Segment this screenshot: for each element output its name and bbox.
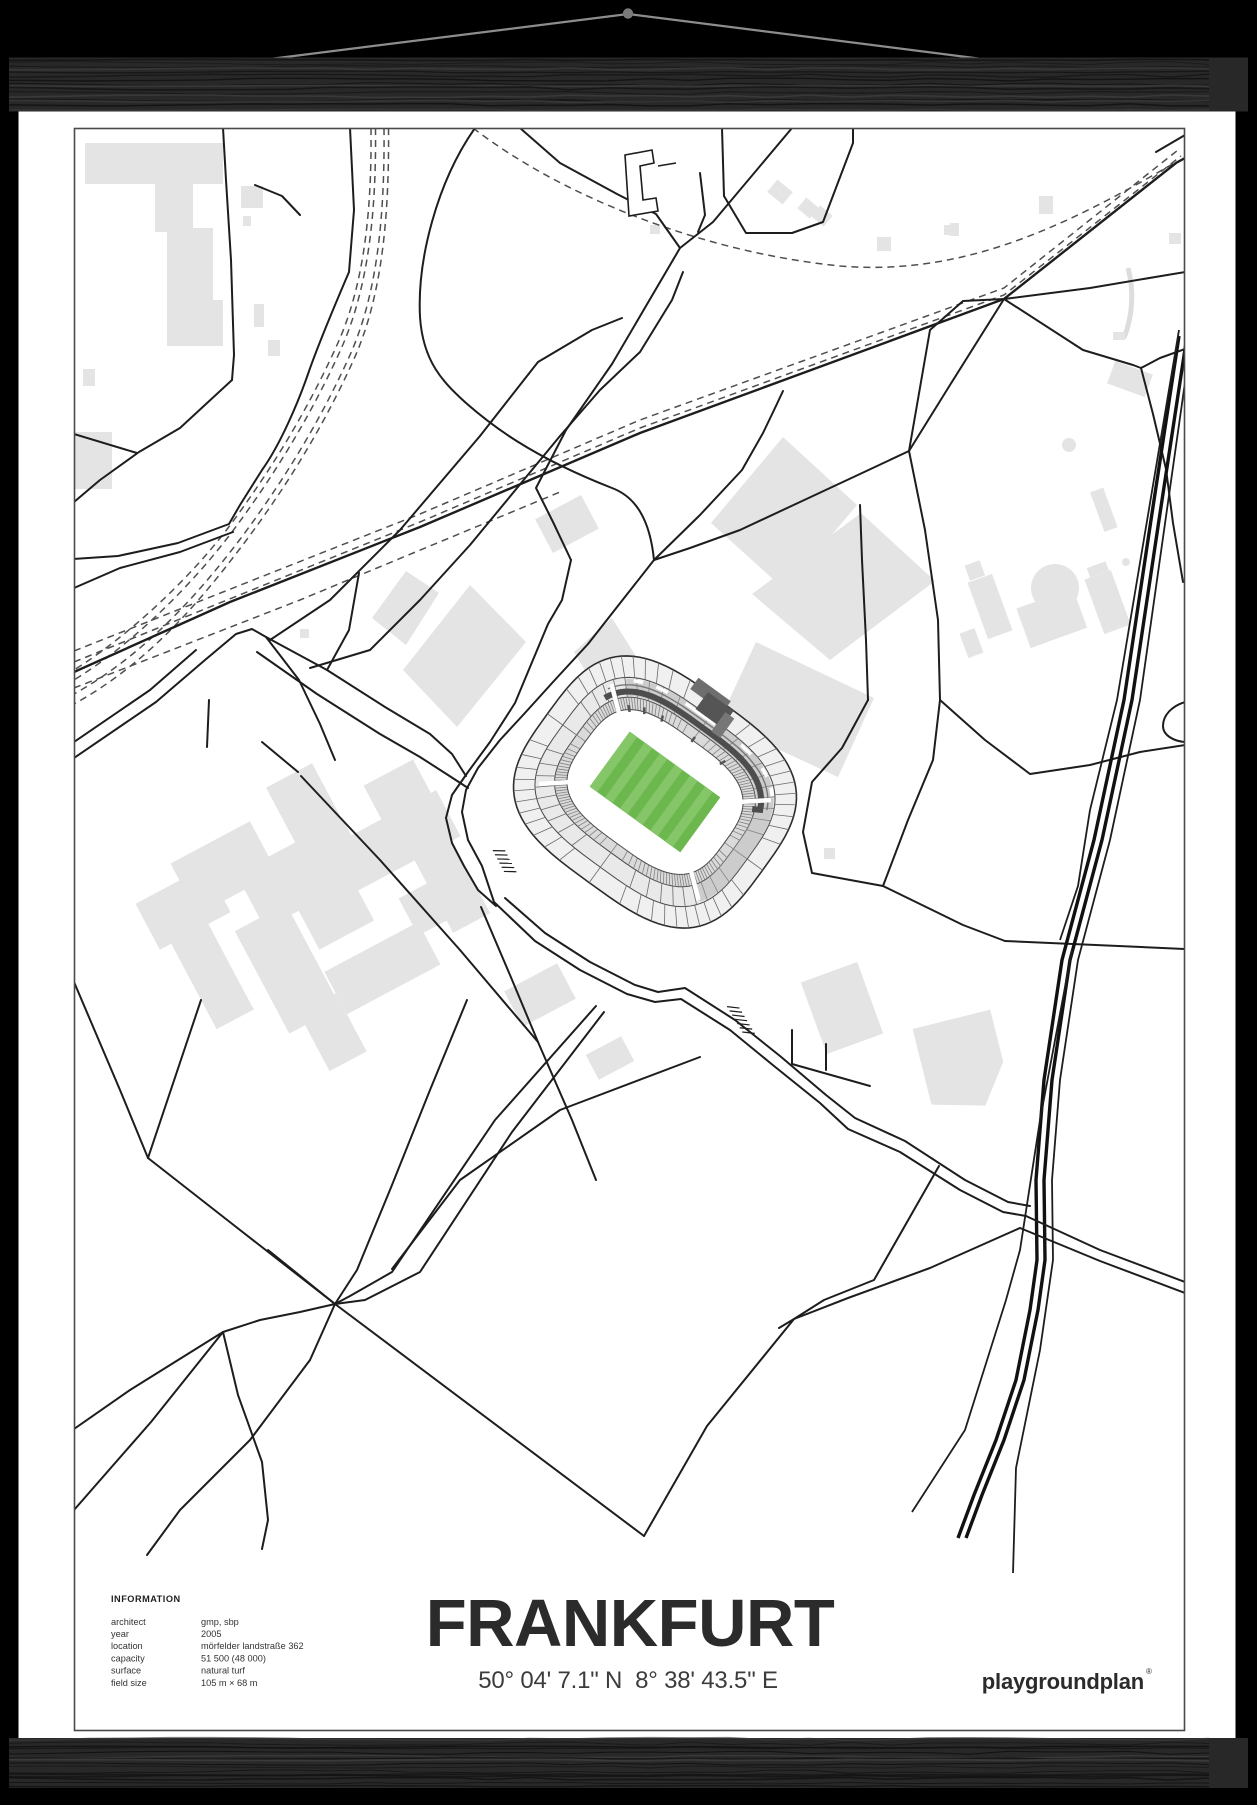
svg-text:50° 04' 7.1" N 8° 38' 43.5" E: 50° 04' 7.1" N 8° 38' 43.5" E — [478, 1667, 778, 1694]
svg-text:playgroundplan: playgroundplan — [982, 1669, 1144, 1694]
svg-text:INFORMATION: INFORMATION — [111, 1594, 181, 1604]
svg-text:2005: 2005 — [201, 1629, 221, 1639]
svg-text:field size: field size — [111, 1678, 147, 1688]
svg-text:capacity: capacity — [111, 1653, 145, 1663]
svg-text:architect: architect — [111, 1617, 146, 1627]
svg-text:FRANKFURT: FRANKFURT — [426, 1586, 835, 1661]
svg-text:location: location — [111, 1641, 143, 1651]
svg-text:natural turf: natural turf — [201, 1666, 245, 1676]
svg-text:®: ® — [1146, 1667, 1152, 1676]
svg-text:year: year — [111, 1629, 129, 1639]
svg-text:surface: surface — [111, 1666, 141, 1676]
svg-text:mörfelder landstraße 362: mörfelder landstraße 362 — [201, 1641, 304, 1651]
svg-text:51 500 (48 000): 51 500 (48 000) — [201, 1653, 266, 1663]
svg-text:gmp, sbp: gmp, sbp — [201, 1617, 239, 1627]
svg-text:105 m × 68 m: 105 m × 68 m — [201, 1678, 258, 1688]
